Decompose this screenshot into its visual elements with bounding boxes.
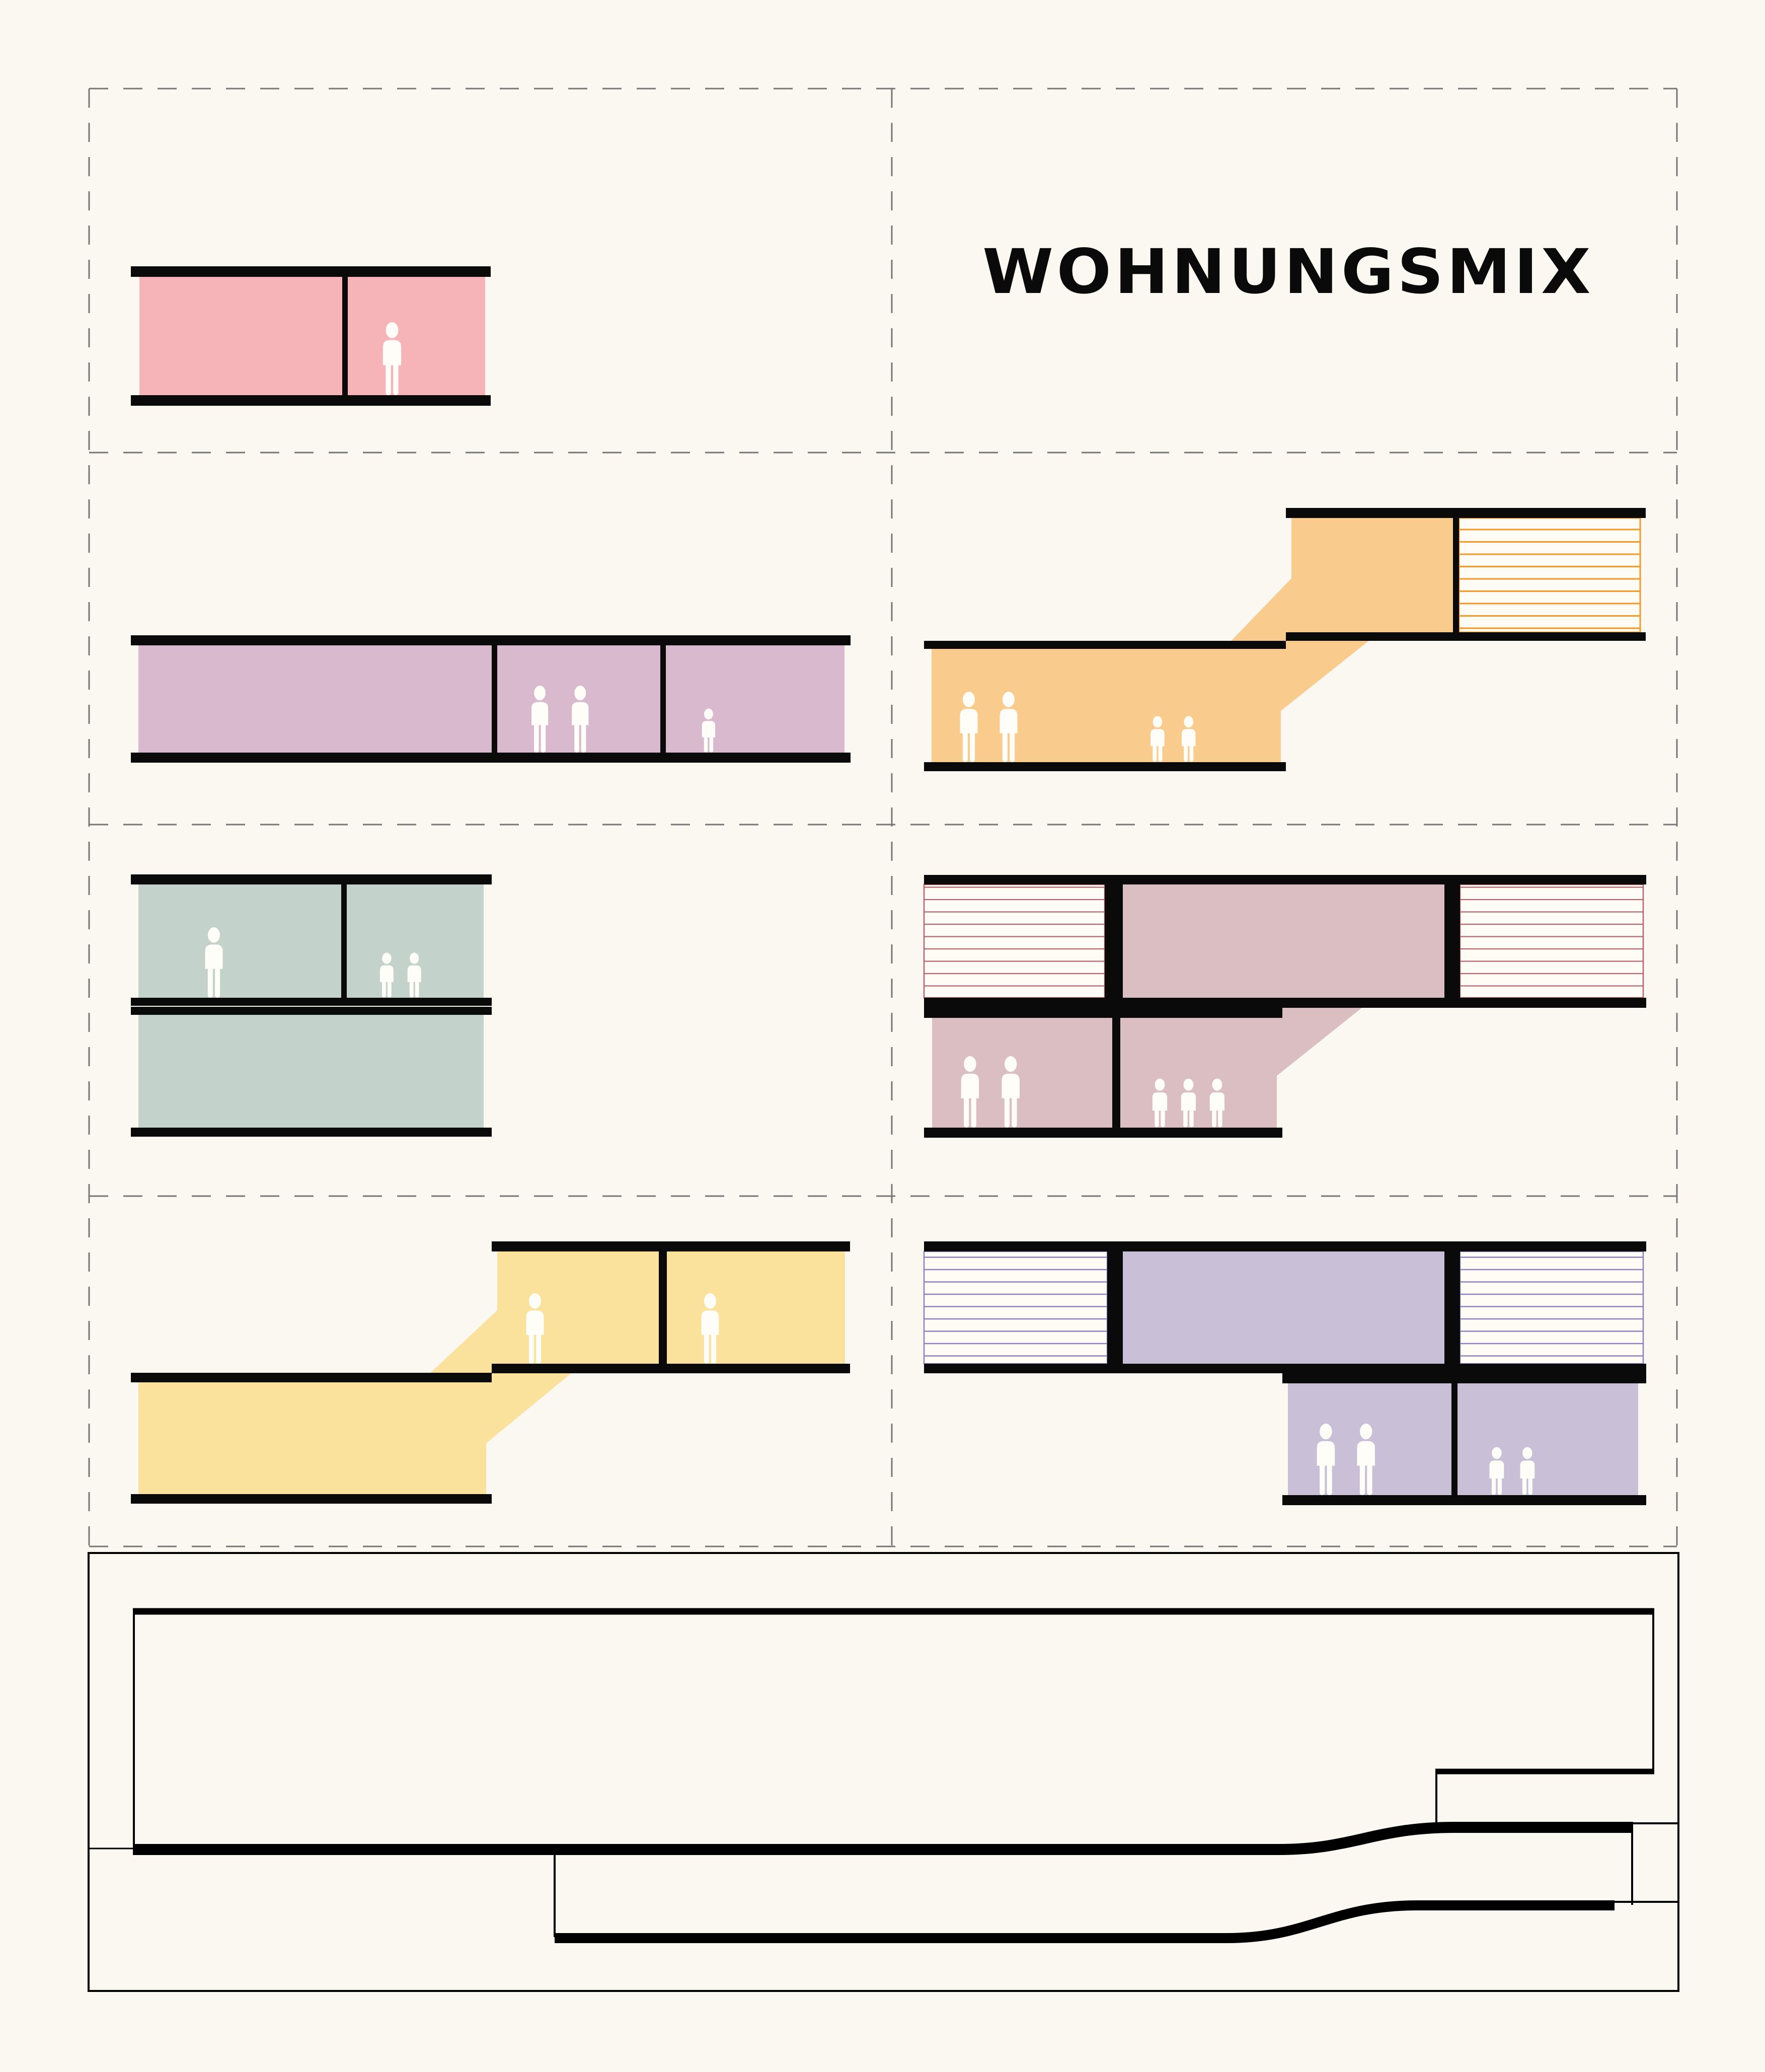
floor-slab xyxy=(924,875,1646,884)
apartment-lilac xyxy=(131,635,851,763)
unit-divider xyxy=(1107,1251,1123,1364)
unit-divider xyxy=(1105,884,1123,998)
apartment-pink xyxy=(131,266,491,406)
floor-slab xyxy=(1282,1495,1646,1505)
purple-lower-fill xyxy=(1288,1383,1638,1495)
green-lower-fill xyxy=(138,1015,484,1128)
floor-slab xyxy=(131,998,492,1006)
floor-slab xyxy=(131,635,851,645)
purple-hatch-area xyxy=(1460,1251,1643,1364)
unit-divider xyxy=(659,1251,667,1364)
unit-divider xyxy=(341,884,347,998)
floor-slab xyxy=(131,753,851,763)
floor-slab xyxy=(924,1008,1282,1018)
floor-slab xyxy=(1286,508,1646,518)
purple-hatch-area xyxy=(924,1251,1107,1364)
lilac-fill xyxy=(138,645,845,753)
floor-slab xyxy=(924,762,1286,771)
floor-slab xyxy=(924,1364,1646,1373)
floor-slab xyxy=(131,1494,492,1504)
floor-slab xyxy=(924,1128,1282,1138)
unit-divider xyxy=(342,276,348,395)
floor-slab xyxy=(492,1241,850,1251)
floor-slab xyxy=(924,998,1646,1008)
unit-divider xyxy=(1112,1018,1120,1128)
unit-divider xyxy=(492,645,497,753)
unit-divider xyxy=(1444,884,1460,998)
page-title: WOHNUNGSMIX xyxy=(982,236,1594,308)
floor-slab xyxy=(924,1241,1646,1251)
unit-divider xyxy=(1453,518,1459,632)
floor-slab xyxy=(1282,1373,1646,1383)
pink-fill xyxy=(139,276,485,395)
orange-hatch-area xyxy=(1459,518,1640,632)
floor-slab xyxy=(131,1007,492,1015)
mauve-hatch-area xyxy=(924,884,1105,998)
green-upper-fill xyxy=(138,884,484,998)
purple-upper-fill xyxy=(1123,1251,1444,1364)
floor-slab xyxy=(131,395,491,406)
floor-slab xyxy=(492,1364,850,1373)
unit-divider xyxy=(660,645,666,753)
mauve-upper-fill xyxy=(1123,884,1444,998)
floor-slab xyxy=(1286,632,1646,641)
floor-slab xyxy=(131,874,492,884)
poster-canvas: WOHNUNGSMIX xyxy=(0,0,1765,2072)
floor-slab xyxy=(131,266,491,277)
floor-slab xyxy=(924,641,1286,649)
mauve-hatch-area xyxy=(1460,884,1643,998)
floor-slab xyxy=(131,1128,492,1137)
floor-slab xyxy=(131,1373,492,1382)
unit-divider xyxy=(1451,1383,1457,1495)
unit-divider xyxy=(1444,1251,1460,1364)
apartment-green xyxy=(131,874,492,1137)
